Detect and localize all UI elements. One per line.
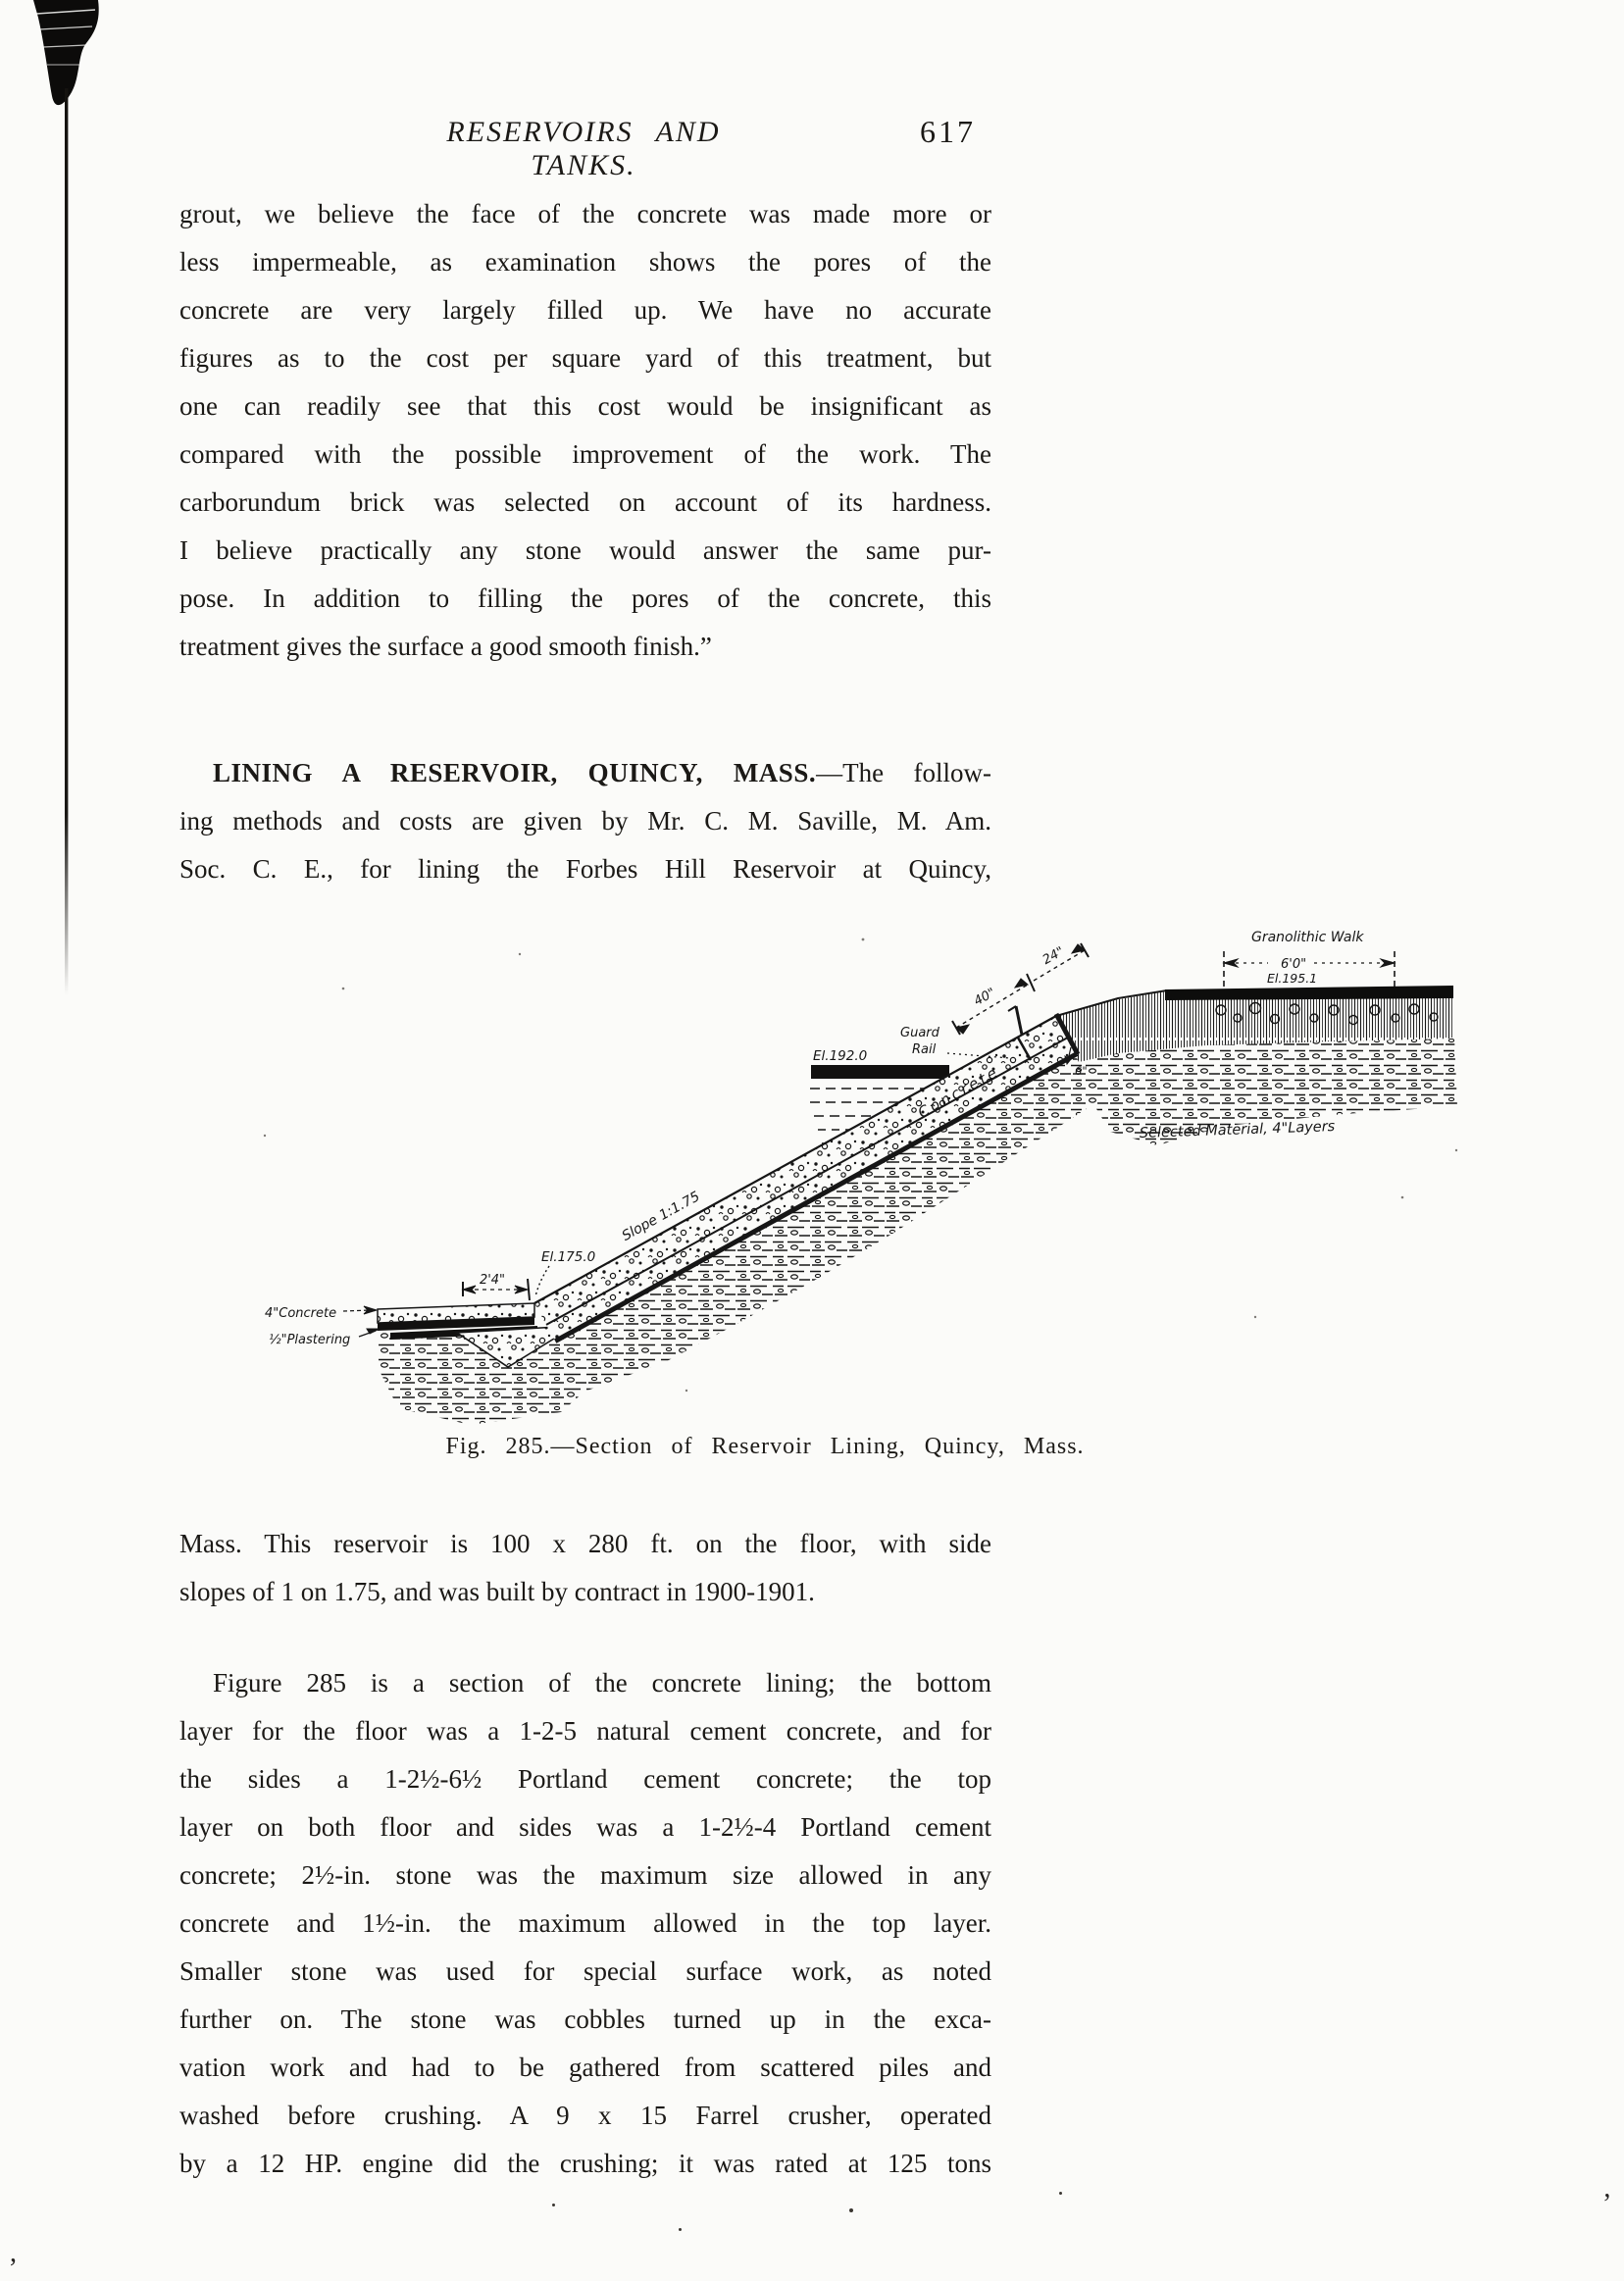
scan-speck xyxy=(849,2208,853,2212)
text-line: pose. In addition to filling the pores o… xyxy=(179,575,991,623)
text-line: Figure 285 is a section of the concrete … xyxy=(179,1659,991,1707)
text-line: less impermeable, as examination shows t… xyxy=(179,238,991,286)
scan-speck-apostrophe: ’ xyxy=(1602,2189,1611,2220)
label-granolithic-walk: Granolithic Walk xyxy=(1251,930,1364,945)
scan-speck xyxy=(552,2204,555,2206)
paragraph-lining-reservoir: LINING A RESERVOIR, QUINCY, MASS.—The fo… xyxy=(179,749,991,893)
slope-lining xyxy=(534,1014,1078,1342)
text-line: concrete and 1½-in. the maximum allowed … xyxy=(179,1900,991,1948)
text-line: grout, we believe the face of the concre… xyxy=(179,190,991,238)
walk-surface-bar xyxy=(1165,986,1453,1000)
text-line: the sides a 1-2½-6½ Portland cement conc… xyxy=(179,1755,991,1803)
section-heading-bold: LINING A RESERVOIR, QUINCY, MASS. xyxy=(213,758,816,787)
label-dim-24: 24" xyxy=(1040,944,1067,968)
label-walk-width: 6'0" xyxy=(1281,957,1306,972)
text-line: further on. The stone was cobbles turned… xyxy=(179,1996,991,2044)
label-floor-concrete: 4"Concrete xyxy=(265,1306,336,1321)
text-line: Smaller stone was used for special surfa… xyxy=(179,1948,991,1996)
text-line: slopes of 1 on 1.75, and was built by co… xyxy=(179,1568,991,1616)
text-line: layer for the floor was a 1-2-5 natural … xyxy=(179,1707,991,1755)
text-line: treatment gives the surface a good smoot… xyxy=(179,623,991,671)
text-line: carborundum brick was selected on accoun… xyxy=(179,479,991,527)
label-el-175: El.175.0 xyxy=(541,1249,595,1265)
text-line: by a 12 HP. engine did the crushing; it … xyxy=(179,2140,991,2188)
scan-speck-comma: , xyxy=(10,2238,17,2269)
section-heading-line: LINING A RESERVOIR, QUINCY, MASS.—The fo… xyxy=(179,749,991,797)
label-floor-plastering: ½"Plastering xyxy=(269,1333,350,1347)
paragraph-figure-285: Figure 285 is a section of the concrete … xyxy=(179,1659,991,2188)
scan-edge-artifact xyxy=(0,0,137,1079)
page-header-title: RESERVOIRS AND TANKS. xyxy=(397,116,770,159)
text-line: layer on both floor and sides was a 1-2½… xyxy=(179,1803,991,1851)
label-floor-dim: 2'4" xyxy=(480,1273,505,1288)
label-el-192: El.192.0 xyxy=(813,1048,867,1064)
scan-speck xyxy=(679,2228,682,2231)
label-guard: Guard xyxy=(900,1026,940,1040)
text-line: concrete are very largely filled up. We … xyxy=(179,286,991,334)
paragraph-mass: Mass. This reservoir is 100 x 280 ft. on… xyxy=(179,1520,991,1616)
guard-rail-post xyxy=(1008,1006,1022,1035)
text-line: compared with the possible improvement o… xyxy=(179,431,991,479)
text-line: concrete; 2½-in. stone was the maximum s… xyxy=(179,1851,991,1900)
text-line: Soc. C. E., for lining the Forbes Hill R… xyxy=(179,845,991,893)
section-heading-rest: —The follow- xyxy=(816,758,991,787)
page-number: 617 xyxy=(920,114,976,150)
figure-caption: Fig. 285.—Section of Reservoir Lining, Q… xyxy=(235,1434,1294,1460)
text-line: ing methods and costs are given by Mr. C… xyxy=(179,797,991,845)
figure-285-diagram: Granolithic Walk 6'0" El.195.1 El.192.0 … xyxy=(177,900,1471,1430)
text-line: Mass. This reservoir is 100 x 280 ft. on… xyxy=(179,1520,991,1568)
label-rail: Rail xyxy=(912,1042,937,1057)
text-line: vation work and had to be gathered from … xyxy=(179,2044,991,2092)
text-line: figures as to the cost per square yard o… xyxy=(179,334,991,382)
text-line: washed before crushing. A 9 x 15 Farrel … xyxy=(179,2092,991,2140)
paragraph-grout: grout, we believe the face of the concre… xyxy=(179,190,991,671)
text-line: one can readily see that this cost would… xyxy=(179,382,991,431)
label-dim-40: 40" xyxy=(972,986,998,1009)
label-dim-6: 6" xyxy=(1075,1064,1088,1078)
label-el-195: El.195.1 xyxy=(1267,971,1317,986)
scan-speck xyxy=(1059,2192,1062,2195)
text-line: I believe practically any stone would an… xyxy=(179,527,991,575)
